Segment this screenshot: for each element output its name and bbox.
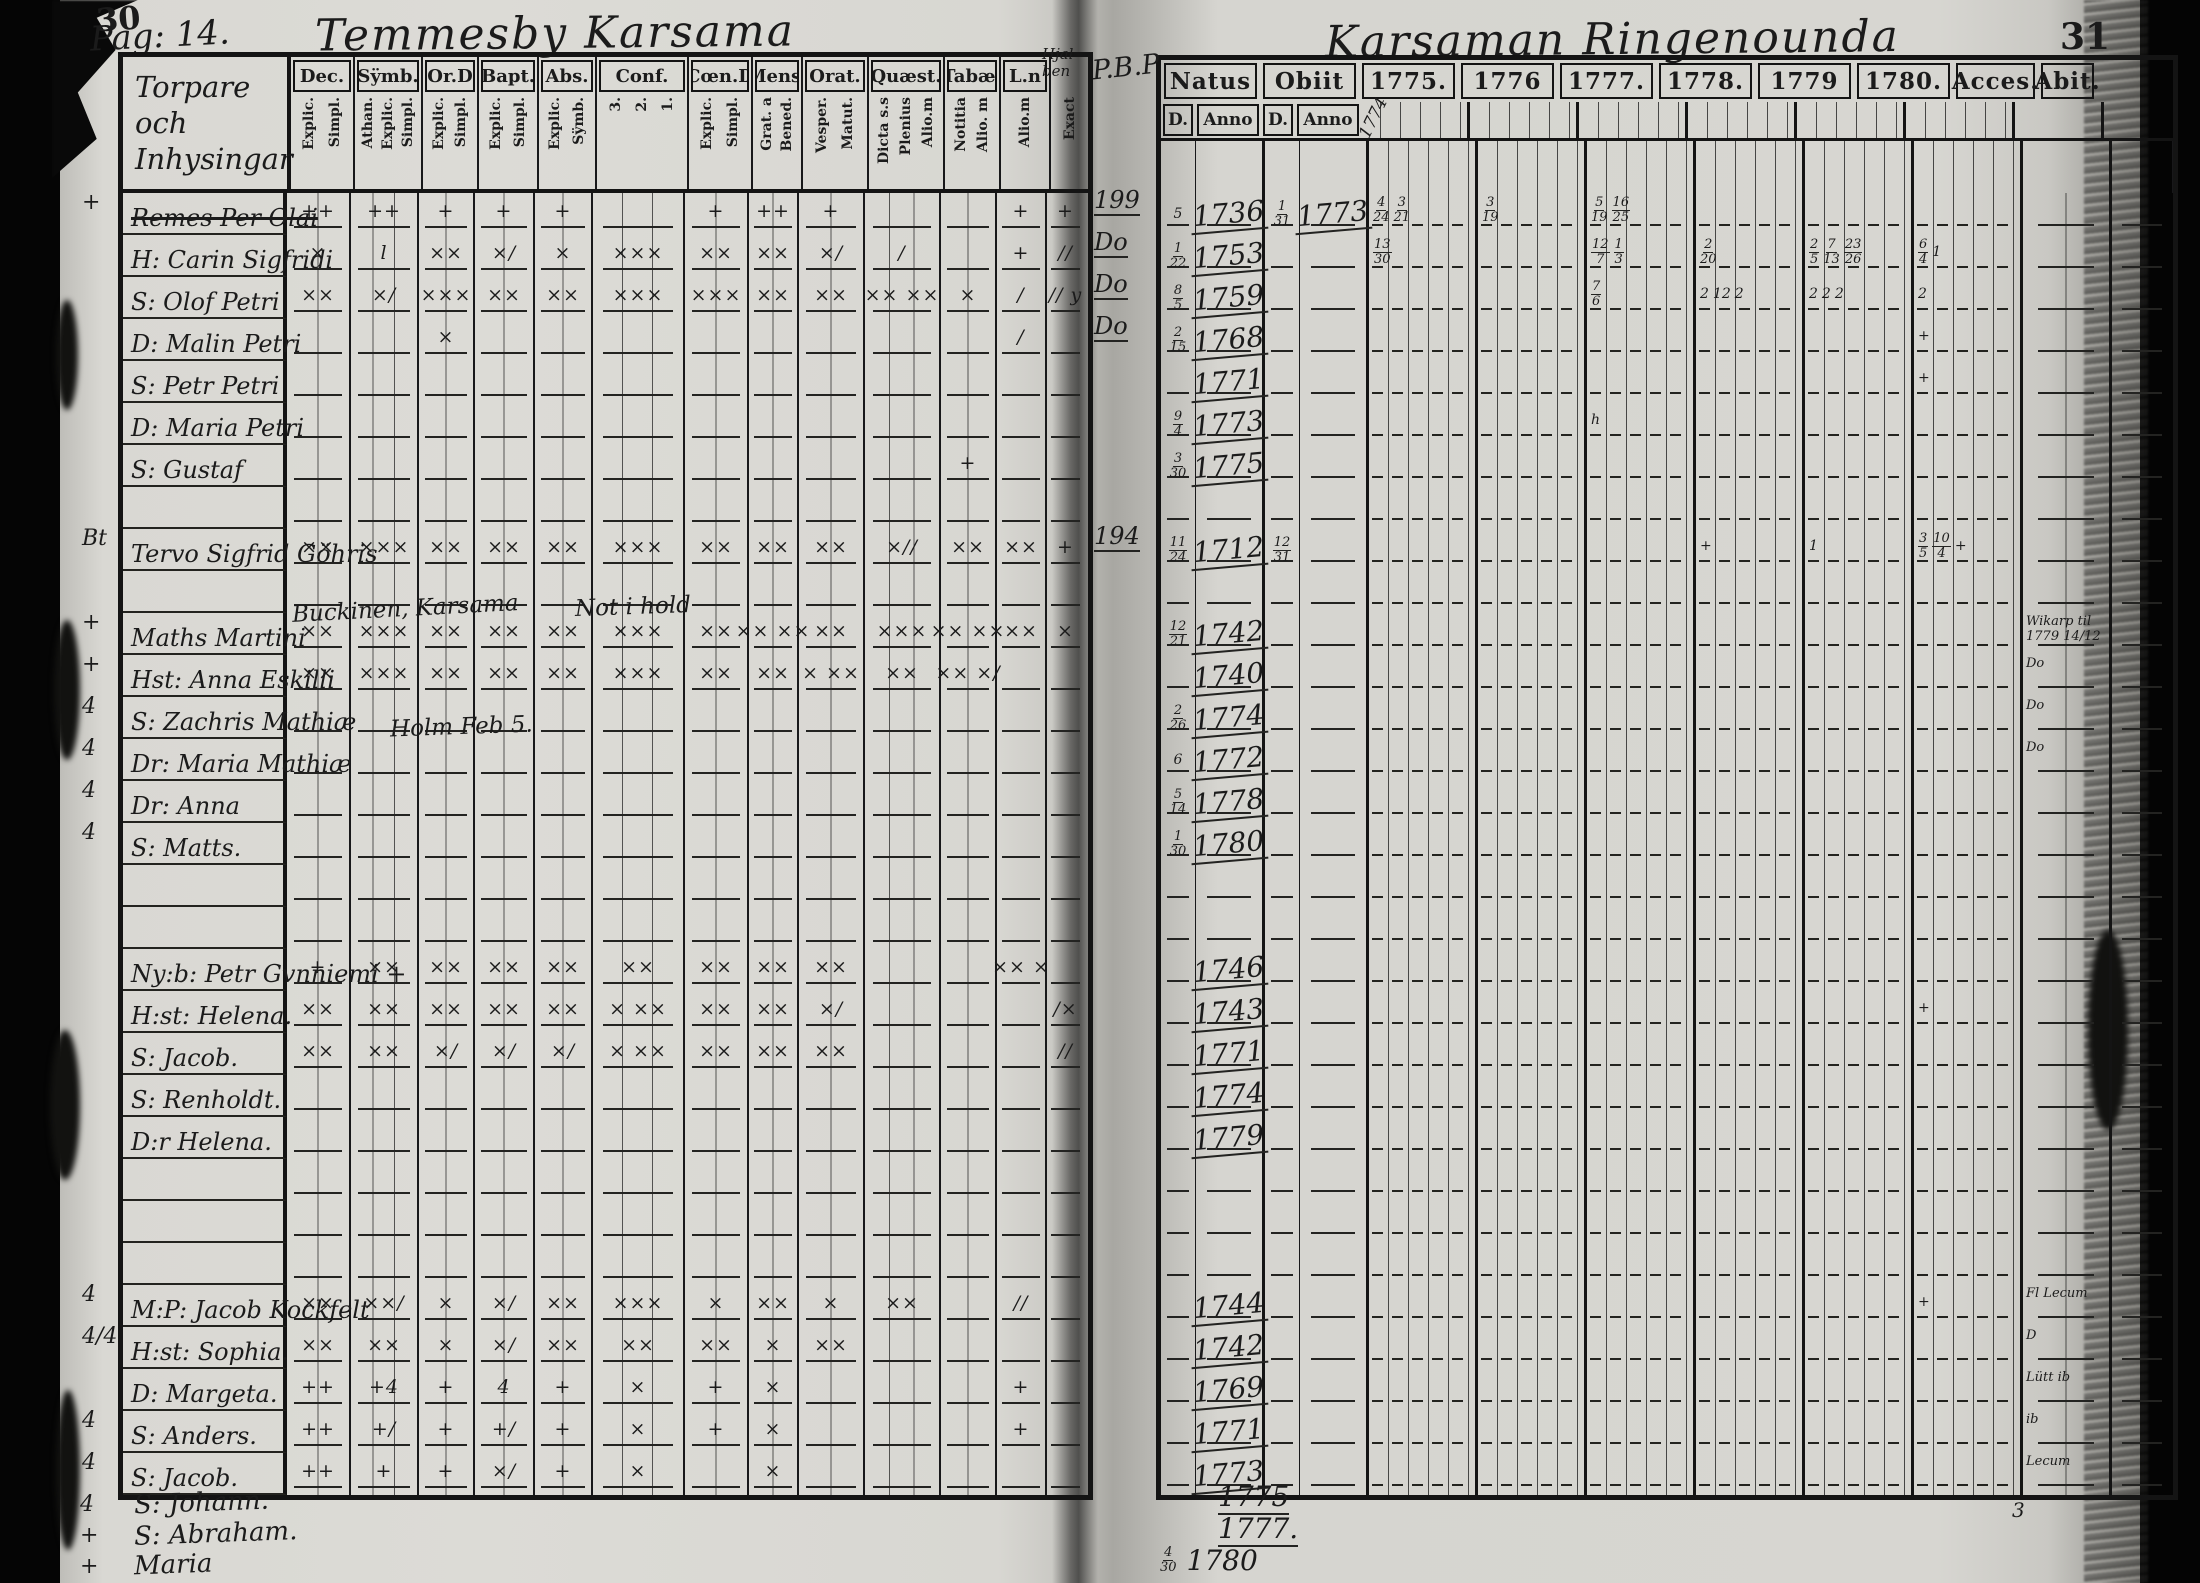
- year-grid-cell: [1696, 1285, 1805, 1327]
- mark-cell: [865, 1327, 941, 1369]
- mark-token: 1: [1809, 538, 1818, 554]
- mark-cell: ×: [749, 1327, 799, 1369]
- communion-marks: +: [1013, 1376, 1030, 1398]
- mark-cell: [1047, 487, 1084, 529]
- obiit-year-cell: [1300, 235, 1369, 277]
- column-sublabel: Simpl.: [328, 97, 342, 147]
- communion-marks: ××: [429, 620, 463, 642]
- mark-cell: +: [685, 193, 749, 235]
- communion-marks: ××: [546, 662, 580, 684]
- person-name: Dr: Maria Mathiæ: [131, 750, 352, 778]
- fraction-numerator: 9: [1173, 410, 1183, 425]
- table-row: 1746: [1161, 949, 2173, 991]
- fraction-denominator: 31: [1274, 215, 1291, 229]
- mark-cell: ××: [419, 949, 475, 991]
- year-grid-cell: [1369, 1033, 1478, 1075]
- name-cell: D: Malin Petri: [123, 319, 287, 361]
- subheader-filler: [1797, 102, 1906, 138]
- year-grid-cell: [1478, 1453, 1587, 1495]
- column-sublabels: Athan.Explic.Simpl.: [355, 92, 421, 189]
- year-grid-cell: [1914, 907, 2023, 949]
- communion-marks: ××: [546, 536, 580, 558]
- abit-cell: [2112, 1075, 2172, 1117]
- year-header-1778: 1778.: [1659, 63, 1752, 99]
- mark-cell: [287, 823, 351, 865]
- person-name: Ny:b: Petr Gvnniemi +: [131, 960, 406, 988]
- mark-cell: [593, 1201, 685, 1243]
- acces-note-line: D: [2026, 1329, 2036, 1344]
- mark-cell: [865, 571, 941, 613]
- left-margin-mark: +: [80, 1554, 98, 1579]
- name-cell: S: Renholdt.: [123, 1075, 287, 1117]
- fraction-denominator: 5: [1919, 547, 1927, 561]
- fraction-denominator: 21: [1394, 211, 1411, 225]
- column-sublabel: Explic.: [381, 97, 395, 150]
- abit-cell: [2112, 1159, 2172, 1201]
- mark-cell: ×/: [475, 1453, 535, 1495]
- mark-cell: [685, 865, 749, 907]
- year-grid-cell: 2: [1914, 277, 2023, 319]
- mark-token: 6: [1174, 752, 1183, 768]
- left-table-header: Torpare ochInhysingarDec.Explic.Simpl.Sÿ…: [123, 57, 1088, 193]
- mark-cell: ++: [351, 193, 419, 235]
- mark-cell: [475, 319, 535, 361]
- date-fraction: 424: [1373, 196, 1390, 224]
- year-grid-cell: [1805, 823, 1914, 865]
- communion-marks: l: [380, 242, 387, 264]
- obiit-day-cell: [1265, 991, 1300, 1033]
- mark-cell: [865, 1369, 941, 1411]
- fraction-denominator: 15: [1170, 341, 1187, 355]
- year-grid-cell: 5191625: [1587, 193, 1696, 235]
- fraction-denominator: 25: [1613, 211, 1630, 225]
- communion-marks: ××: [814, 536, 848, 558]
- year-grid-cell: [1914, 613, 2023, 655]
- mark-cell: +: [535, 1453, 593, 1495]
- column-sublabels: Explic.Simpl.: [689, 92, 751, 189]
- year-grid-cell: [1478, 1369, 1587, 1411]
- year-header-1780: 1780.: [1857, 63, 1950, 99]
- mark-cell: [1047, 1327, 1084, 1369]
- communion-marks: ××: [1004, 620, 1038, 642]
- communion-marks: +/: [372, 1418, 396, 1440]
- obiit-year-cell: [1300, 445, 1369, 487]
- mark-cell: [593, 1117, 685, 1159]
- date-fraction: 13: [1614, 238, 1624, 266]
- mark-cell: +: [419, 1411, 475, 1453]
- abit-cell: [2112, 1411, 2172, 1453]
- mark-cell: [593, 1159, 685, 1201]
- mark-cell: [593, 823, 685, 865]
- year-grid-cell: [1369, 949, 1478, 991]
- fraction-numerator: 3: [1397, 196, 1407, 211]
- abit-cell: [2112, 865, 2172, 907]
- communion-marks: ××: [546, 1292, 580, 1314]
- fraction-numerator: 5: [1173, 788, 1183, 803]
- obiit-year-cell: [1300, 865, 1369, 907]
- year-grid-cell: [1914, 193, 2023, 235]
- hjal-note-line1: Hjal: [1042, 46, 1073, 63]
- mark-cell: [799, 571, 865, 613]
- year-grid-cell: [1805, 655, 1914, 697]
- mark-cell: ×: [749, 1453, 799, 1495]
- mark-cell: [475, 781, 535, 823]
- year-grid-cell: [1805, 445, 1914, 487]
- obiit-day-cell: [1265, 487, 1300, 529]
- mark-cell: ××: [685, 235, 749, 277]
- natus-year-cell: 1742: [1196, 613, 1265, 655]
- year-grid-cell: [1478, 613, 1587, 655]
- communion-marks: ××: [756, 998, 790, 1020]
- mark-cell: [419, 907, 475, 949]
- column-sublabel: Alio. m: [976, 97, 990, 152]
- communion-marks: /×: [1053, 998, 1077, 1020]
- spacer-cell: [1196, 141, 1265, 193]
- name-cell: Dr: Anna: [123, 781, 287, 823]
- abit-cell: [2112, 487, 2172, 529]
- mark-cell: [799, 865, 865, 907]
- name-cell: [123, 1243, 287, 1285]
- year-grid-cell: [1369, 445, 1478, 487]
- column-header-abs: Abs.Explic.Sÿmb.: [539, 57, 597, 189]
- mark-cell: ××: [475, 277, 535, 319]
- mark-cell: [749, 739, 799, 781]
- abit-cell: [2112, 319, 2172, 361]
- mark-token: +: [1918, 370, 1930, 386]
- left-margin-mark: 4: [82, 1408, 96, 1433]
- mark-cell: ×: [593, 1411, 685, 1453]
- obiit-year-cell: [1300, 1159, 1369, 1201]
- natus-day-cell: [1161, 907, 1196, 949]
- mark-cell: [351, 319, 419, 361]
- name-cell: H:st: Helena.: [123, 991, 287, 1033]
- year-grid-cell: [1478, 319, 1587, 361]
- mark-cell: ××: [593, 949, 685, 991]
- mark-cell: [419, 1075, 475, 1117]
- communion-marks: ××: [814, 620, 848, 642]
- fraction-numerator: 12: [1591, 238, 1610, 253]
- mark-cell: ××: [419, 655, 475, 697]
- mark-cell: [593, 445, 685, 487]
- year-grid-cell: [1696, 1453, 1805, 1495]
- year-grid-cell: [1805, 1369, 1914, 1411]
- mark-cell: [1047, 1411, 1084, 1453]
- name-cell: D: Margeta.: [123, 1369, 287, 1411]
- mark-cell: ×××: [865, 613, 941, 655]
- obiit-day-cell: [1265, 655, 1300, 697]
- year-grid-cell: +: [1914, 991, 2023, 1033]
- communion-marks: ××: [487, 284, 521, 306]
- year-grid-cell: [1914, 865, 2023, 907]
- mark-cell: [535, 361, 593, 403]
- abit-cell: [2112, 1033, 2172, 1075]
- communion-marks: ×: [1057, 620, 1074, 642]
- table-row: S: Zachris Mathiæ: [123, 697, 1088, 739]
- year-grid-cell: [1369, 361, 1478, 403]
- fraction-numerator: 4: [1163, 1546, 1173, 1561]
- edge-smudge: [56, 1390, 80, 1550]
- obiit-day-cell: [1265, 571, 1300, 613]
- mark-cell: ×× ××: [865, 277, 941, 319]
- natus-year: 1759: [1189, 277, 1269, 319]
- mark-cell: [865, 907, 941, 949]
- mark-cell: ×××: [593, 235, 685, 277]
- mark-cell: [941, 1201, 997, 1243]
- mark-cell: [1047, 1075, 1084, 1117]
- column-sublabel: 2.: [635, 97, 649, 112]
- mark-cell: [535, 1201, 593, 1243]
- mark-cell: +: [799, 193, 865, 235]
- mark-cell: ××: [351, 1033, 419, 1075]
- year-grid-cell: [1369, 571, 1478, 613]
- table-row: H: Carin Sigfridi×l×××/×××××××××//+//: [123, 235, 1088, 277]
- communion-marks: ×: [708, 1292, 725, 1314]
- natus-year-below-table: 1777.: [1218, 1512, 1298, 1547]
- year-grid-cell: [1369, 1453, 1478, 1495]
- date-fraction: 94: [1173, 410, 1183, 438]
- year-grid-cell: [1696, 697, 1805, 739]
- mark-cell: [593, 781, 685, 823]
- communion-marks: ++: [301, 1460, 335, 1482]
- communion-marks: ×××: [613, 284, 664, 306]
- acces-note: ib: [2026, 1413, 2038, 1428]
- year-grid-cell: [1369, 697, 1478, 739]
- mark-token: 2: [1809, 286, 1818, 302]
- obiit-year-cell: [1300, 1117, 1369, 1159]
- year-grid-cell: 1330: [1369, 235, 1478, 277]
- year-grid-cell: [1805, 403, 1914, 445]
- mark-cell: [865, 403, 941, 445]
- mark-cell: ×/: [475, 1033, 535, 1075]
- mark-cell: /×: [1047, 991, 1084, 1033]
- date-fraction: 1124: [1169, 536, 1188, 564]
- mark-cell: [749, 403, 799, 445]
- table-row: 1774: [1161, 1075, 2173, 1117]
- communion-marks: ++: [367, 200, 401, 222]
- column-sublabel: Simpl.: [726, 97, 740, 147]
- mark-token: 2: [1835, 286, 1844, 302]
- acces-note-line: Do: [2026, 741, 2044, 756]
- fraction-numerator: 7: [1826, 238, 1836, 253]
- date-fraction: 1330: [1373, 238, 1392, 266]
- mark-cell: [475, 1243, 535, 1285]
- mark-cell: [941, 823, 997, 865]
- year-grid-cell: [1914, 739, 2023, 781]
- table-row: 12211742Wikarp til1779 14/12: [1161, 613, 2173, 655]
- mark-cell: ××: [865, 655, 941, 697]
- mark-cell: ××: [685, 1327, 749, 1369]
- obiit-day-cell: [1265, 1117, 1300, 1159]
- year-grid-cell: [1914, 655, 2023, 697]
- mark-cell: ×: [799, 1285, 865, 1327]
- mark-cell: ×/: [475, 1327, 535, 1369]
- communion-marks: 4: [497, 1376, 510, 1398]
- mark-cell: [997, 1117, 1047, 1159]
- mark-cell: [535, 319, 593, 361]
- person-name-below-table: S: Johann.: [134, 1486, 270, 1521]
- mark-token: +: [1918, 1000, 1930, 1016]
- year-grid-cell: [1914, 1369, 2023, 1411]
- mark-cell: [799, 1243, 865, 1285]
- mark-cell: × ××: [593, 1033, 685, 1075]
- natus-year-cell: 1744: [1196, 1285, 1265, 1327]
- communion-marks: ××: [429, 956, 463, 978]
- mark-cell: [535, 907, 593, 949]
- subheader-filler: [1470, 102, 1579, 138]
- year-grid-cell: [1914, 1201, 2023, 1243]
- year-grid-cell: [1805, 1327, 1914, 1369]
- communion-marks: ×/: [492, 1460, 516, 1482]
- mark-cell: [799, 1201, 865, 1243]
- column-label: Mens.: [755, 60, 799, 92]
- mark-cell: /: [997, 319, 1047, 361]
- year-grid-cell: [1914, 1075, 2023, 1117]
- right-table-spacer-row: [1161, 141, 2173, 193]
- communion-marks: ××: [756, 536, 790, 558]
- mark-cell: +: [535, 193, 593, 235]
- fraction-numerator: 6: [1918, 238, 1928, 253]
- d-anno-header: Anno: [1297, 104, 1359, 136]
- mark-cell: [941, 781, 997, 823]
- mark-cell: [749, 823, 799, 865]
- year-grid-cell: 76: [1587, 277, 1696, 319]
- mark-cell: [865, 1411, 941, 1453]
- abit-cell: [2112, 697, 2172, 739]
- acces-note-line: Lecum: [2026, 1455, 2070, 1470]
- obiit-year-cell: [1300, 1075, 1369, 1117]
- obiit-day-cell: [1265, 697, 1300, 739]
- mark-cell: [535, 823, 593, 865]
- column-sublabel: Vesper.: [815, 97, 829, 153]
- mark-cell: //: [1047, 1033, 1084, 1075]
- table-row: D: Maria Petri: [123, 403, 1088, 445]
- mark-cell: +: [419, 193, 475, 235]
- communion-marks: ××: [1004, 536, 1038, 558]
- year-grid-cell: [1587, 823, 1696, 865]
- mark-cell: ××: [941, 529, 997, 571]
- communion-marks: ××: [621, 956, 655, 978]
- mark-cell: ×/: [419, 1033, 475, 1075]
- spacer-cell: [1300, 141, 1369, 193]
- year-grid-cell: [1805, 1285, 1914, 1327]
- person-name: S: Gustaf: [131, 456, 243, 484]
- year-grid-cell: [1369, 781, 1478, 823]
- fraction-denominator: 6: [1592, 295, 1600, 309]
- column-label: Quæst.: [871, 60, 941, 92]
- acces-cell: Do: [2023, 655, 2112, 697]
- fraction-numerator: 13: [1373, 238, 1392, 253]
- acces-note-line: Fl Lecum: [2026, 1287, 2088, 1302]
- left-margin-mark: 4: [80, 1492, 94, 1517]
- year-grid-cell: [1369, 487, 1478, 529]
- column-label: Cœn.D: [691, 60, 749, 92]
- mark-cell: [865, 1075, 941, 1117]
- year-grid-cell: [1696, 739, 1805, 781]
- year-grid-cell: [1478, 991, 1587, 1033]
- communion-marks: //: [1058, 242, 1073, 264]
- natus-year: 1779: [1189, 1117, 1269, 1159]
- column-sublabels: Explic.Sÿmb.: [539, 92, 595, 189]
- column-sublabel: Simpl.: [513, 97, 527, 147]
- column-header-mens: Mens.Grat. aBened.: [753, 57, 803, 189]
- mark-cell: [749, 697, 799, 739]
- mark-cell: ××: [685, 529, 749, 571]
- mark-cell: [997, 655, 1047, 697]
- communion-marks: ××: [756, 284, 790, 306]
- column-header-conf: Conf.3.2.1.: [597, 57, 689, 189]
- mark-cell: [287, 445, 351, 487]
- column-sublabels: Dicta s.sPleniusAlio.m: [869, 92, 943, 189]
- right-page-number: 31: [2060, 16, 2110, 58]
- abit-cell: [2112, 907, 2172, 949]
- natus-year-cell: [1196, 865, 1265, 907]
- communion-marks: +: [708, 1376, 725, 1398]
- fraction-denominator: 30: [1170, 845, 1187, 859]
- table-row: Dr: Maria Mathiæ: [123, 739, 1088, 781]
- date-fraction: 1625: [1612, 196, 1631, 224]
- person-name: D: Margeta.: [131, 1380, 277, 1408]
- date-fraction: 430: [1160, 1546, 1177, 1574]
- mark-cell: [419, 739, 475, 781]
- mark-cell: [351, 487, 419, 529]
- mark-cell: ×: [593, 1453, 685, 1495]
- name-cell: D:r Helena.: [123, 1117, 287, 1159]
- left-margin-mark: Bt: [82, 526, 107, 551]
- mark-cell: ×/: [475, 235, 535, 277]
- mark-cell: ×× ××: [749, 613, 799, 655]
- mark-cell: [997, 865, 1047, 907]
- table-row: 1771: [1161, 1033, 2173, 1075]
- fraction-numerator: 1: [1614, 238, 1624, 253]
- year-grid-cell: [1914, 445, 2023, 487]
- mark-cell: [593, 403, 685, 445]
- spacer-cell: [1161, 141, 1196, 193]
- year-grid-cell: [1805, 613, 1914, 655]
- year-grid-cell: [1696, 1201, 1805, 1243]
- mark-cell: +: [997, 235, 1047, 277]
- mark-cell: +: [941, 445, 997, 487]
- year-grid-cell: [1696, 1411, 1805, 1453]
- mark-cell: [1047, 781, 1084, 823]
- natus-year: 1742: [1189, 613, 1269, 655]
- year-grid-cell: [1587, 697, 1696, 739]
- communion-marks: ××: [699, 1040, 733, 1062]
- mark-cell: [1047, 697, 1084, 739]
- table-row: 1771+: [1161, 361, 2173, 403]
- year-grid-cell: [1587, 739, 1696, 781]
- year-grid-cell: [1369, 907, 1478, 949]
- mark-cell: ×××: [593, 529, 685, 571]
- name-cell: S: Matts.: [123, 823, 287, 865]
- communion-marks: ××: [487, 620, 521, 642]
- year-grid-cell: [1587, 1159, 1696, 1201]
- mark-cell: [865, 1453, 941, 1495]
- year-grid-cell: [1587, 1369, 1696, 1411]
- mark-cell: +: [419, 1453, 475, 1495]
- column-header-tab: Tabæ.NotitiaAlio. m: [945, 57, 1001, 189]
- mark-cell: [997, 1201, 1047, 1243]
- year-grid-cell: [1478, 1285, 1587, 1327]
- person-name: S: Matts.: [131, 834, 241, 862]
- natus-year-cell: 1736: [1196, 193, 1265, 235]
- mark-cell: [941, 403, 997, 445]
- fraction-denominator: 26: [1170, 719, 1187, 733]
- mark-cell: [593, 487, 685, 529]
- natus-year-cell: [1196, 1201, 1265, 1243]
- obiit-year-cell: [1300, 1369, 1369, 1411]
- mark-cell: ×: [749, 1411, 799, 1453]
- year-grid-cell: [1587, 907, 1696, 949]
